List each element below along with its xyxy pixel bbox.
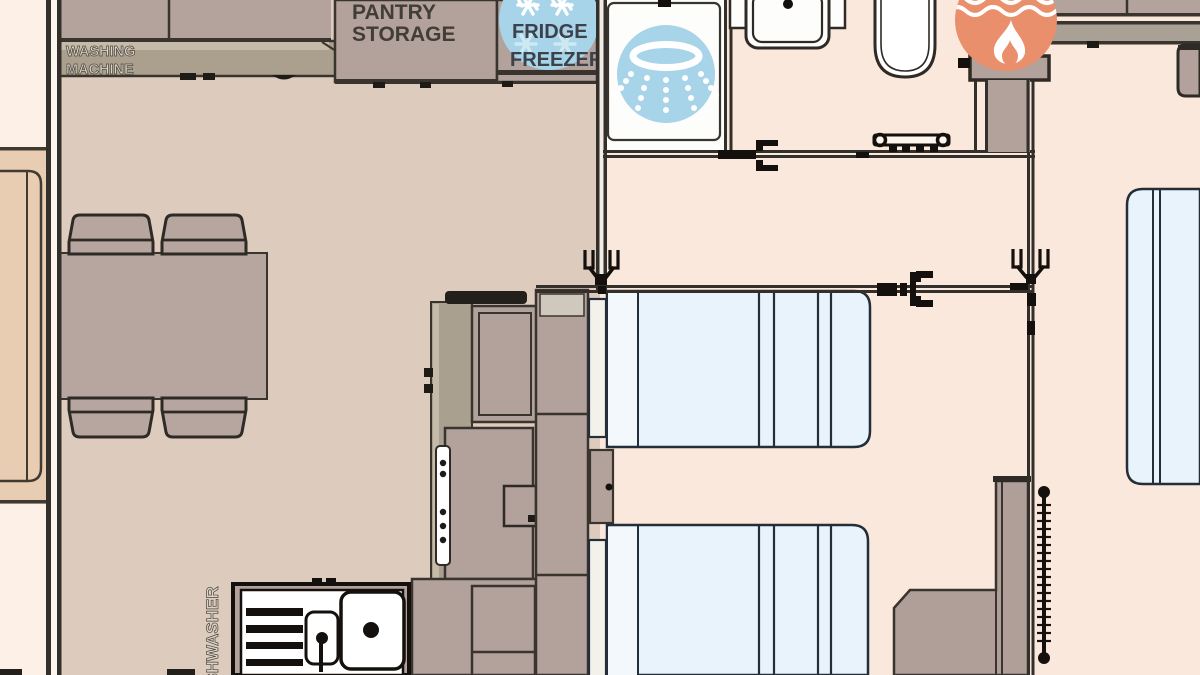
svg-text:DISHWASHER: DISHWASHER xyxy=(203,586,222,675)
svg-text:STORAGE: STORAGE xyxy=(352,23,455,46)
svg-text:MACHINE: MACHINE xyxy=(66,62,134,78)
svg-text:FREEZER: FREEZER xyxy=(510,49,604,71)
svg-text:FRIDGE: FRIDGE xyxy=(512,21,588,43)
svg-text:PANTRY: PANTRY xyxy=(352,1,436,24)
svg-text:WASHING: WASHING xyxy=(66,44,135,60)
